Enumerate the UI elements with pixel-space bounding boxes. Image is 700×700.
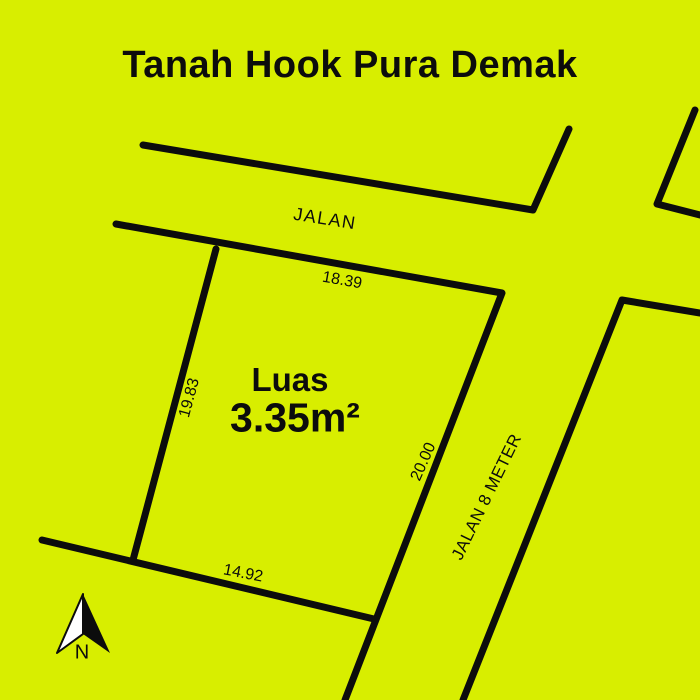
area-value: 3.35m² (230, 395, 360, 442)
north-label: N (75, 642, 89, 665)
plot-bottom-edge-line (42, 540, 374, 619)
land-plot-poster: Tanah Hook Pura Demak JALAN 18.39 19.83 … (0, 0, 700, 700)
area-label: Luas (251, 361, 328, 399)
road-intersection-ne-corner-line (657, 110, 700, 215)
plot-left-edge-line (133, 249, 216, 560)
road-jalan-upper-boundary-line (143, 129, 569, 210)
plot-map (0, 0, 700, 700)
road-8m-right-boundary-line (463, 300, 700, 700)
plot-top-and-right-edge-line (116, 224, 502, 700)
